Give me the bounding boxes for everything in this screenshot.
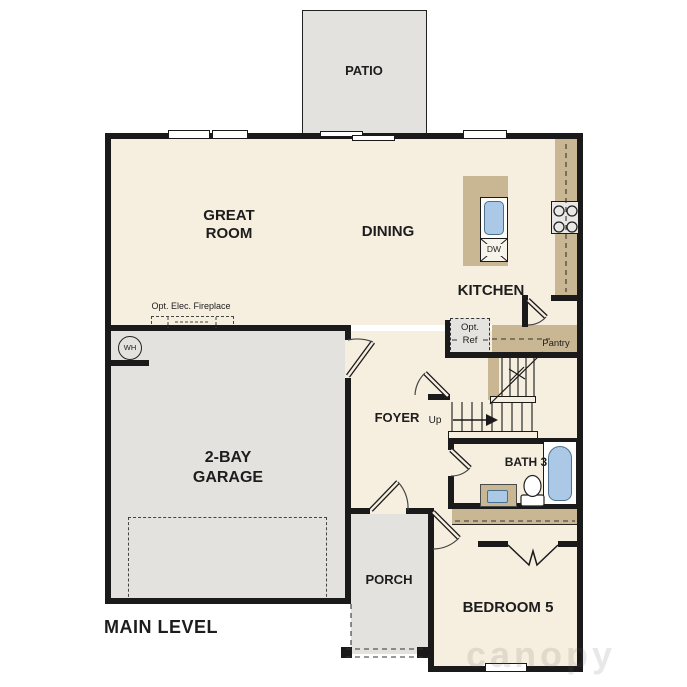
pantry-door bbox=[528, 300, 546, 325]
floorplan-canvas: PATIO GREAT ROOM DINING KITCHEN 2-BAY GA… bbox=[0, 0, 687, 687]
understair-closet-door bbox=[415, 373, 448, 396]
room-label-bedroom5: BEDROOM 5 bbox=[448, 599, 568, 617]
front-door bbox=[371, 482, 408, 510]
room-label-pantry: Pantry bbox=[526, 338, 586, 350]
room-label-kitchen: KITCHEN bbox=[441, 282, 541, 300]
room-label-foyer: FOYER bbox=[362, 410, 432, 426]
room-label-porch: PORCH bbox=[354, 572, 424, 588]
stair-treads-lower bbox=[452, 402, 532, 431]
closet-bifold-doors bbox=[508, 545, 558, 565]
room-label-great-room: GREAT ROOM bbox=[184, 207, 274, 244]
fireplace-ticks bbox=[168, 317, 216, 328]
annotation-opt-ref-1: Opt. bbox=[450, 322, 490, 334]
annotation-fireplace: Opt. Elec. Fireplace bbox=[131, 301, 251, 312]
room-label-garage: 2-BAY GARAGE bbox=[183, 448, 273, 487]
stairs-up-arrow bbox=[453, 414, 498, 426]
garage-entry-door bbox=[348, 339, 373, 376]
annotation-opt-ref-2: Ref bbox=[450, 335, 490, 347]
room-label-bath3: BATH 3 bbox=[491, 455, 561, 470]
room-label-dining: DINING bbox=[338, 223, 438, 241]
room-label-patio: PATIO bbox=[324, 63, 404, 79]
annotation-water-heater: WH bbox=[118, 343, 142, 352]
annotation-dishwasher: DW bbox=[480, 244, 508, 254]
bedroom5-door bbox=[433, 512, 459, 549]
stair-break-line bbox=[490, 352, 543, 404]
bath3-door bbox=[451, 450, 470, 476]
watermark-text: canopy bbox=[466, 634, 616, 676]
level-title: MAIN LEVEL bbox=[104, 617, 284, 639]
annotation-stairs-up: Up bbox=[424, 415, 446, 427]
toilet bbox=[521, 476, 544, 507]
